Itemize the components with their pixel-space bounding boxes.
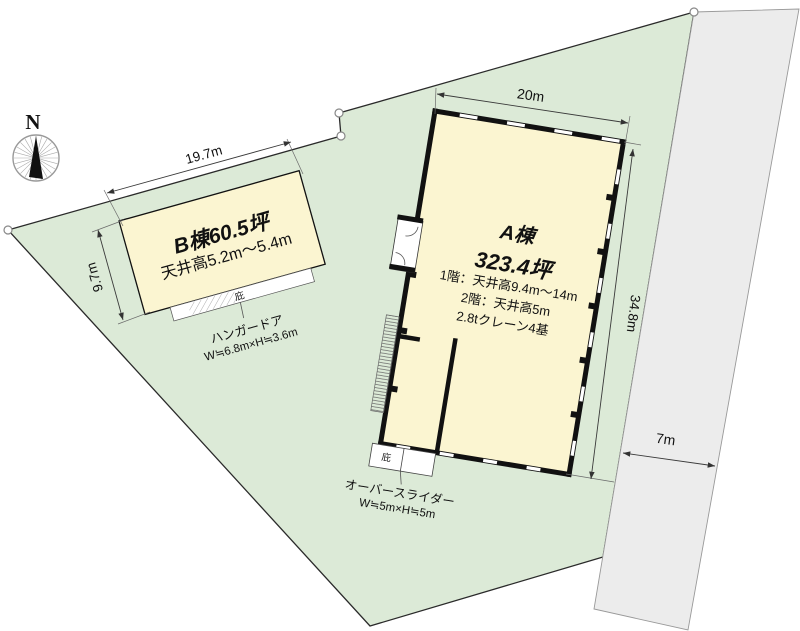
vertex-marker: [335, 109, 343, 117]
vertex-marker: [337, 132, 345, 140]
vertex-marker: [690, 8, 698, 16]
dimension-label-road-width: 7m: [655, 430, 676, 449]
compass-north-label: N: [25, 110, 40, 134]
compass-rose-icon: N: [13, 110, 59, 181]
site-plan-svg: 庇 ハンガードア W≒6.8m×H≒3.6m B棟60.5坪 天井高5.2m～5…: [0, 0, 800, 631]
site-plan-page: 庇 ハンガードア W≒6.8m×H≒3.6m B棟60.5坪 天井高5.2m～5…: [0, 0, 800, 631]
vertex-marker: [4, 226, 12, 234]
dimension-label-b-width: 19.7m: [184, 142, 224, 166]
